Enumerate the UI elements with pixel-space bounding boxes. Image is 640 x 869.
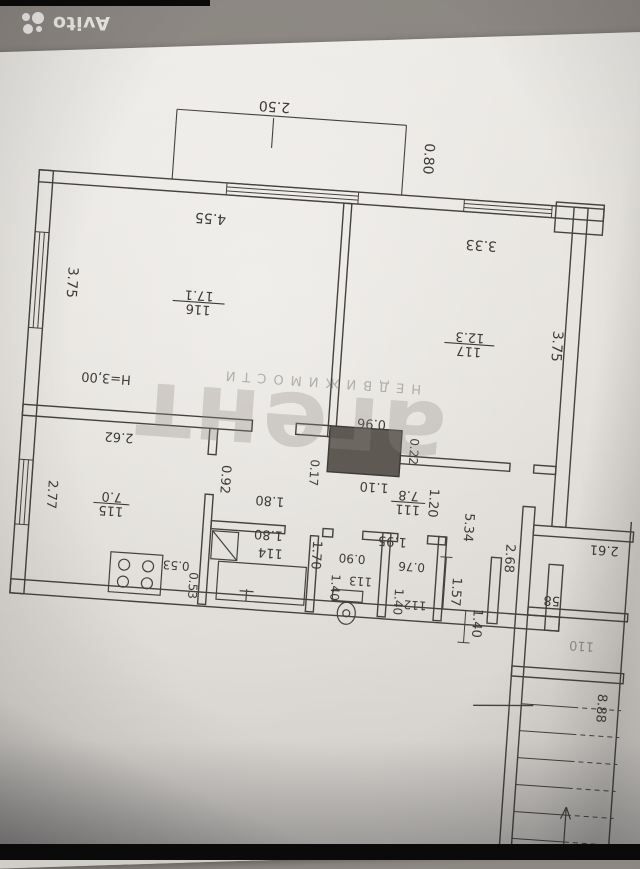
- plan-label-bath-180-a: 1.80: [255, 492, 285, 509]
- plan-label-entry-157: 1.57: [447, 577, 464, 607]
- plan-label-room115-number: 115: [98, 502, 124, 519]
- plan-label-stair-888: 8.88: [592, 693, 609, 723]
- plan-label-wc-140: 1.40: [327, 574, 343, 602]
- plan-label-landing-268: 2.68: [501, 544, 518, 574]
- plan-label-balcony-depth: 0.80: [419, 143, 437, 175]
- plan-label-kitchen-053-h: 0.53: [162, 557, 190, 573]
- plan-label-room116-width: 4.55: [194, 209, 226, 227]
- plan-label-bath-180-b: 1.80: [254, 526, 284, 543]
- plan-label-right-wall-dim: 3.75: [547, 330, 565, 362]
- plan-label-balcony-width: 2.50: [258, 97, 290, 115]
- plan-label-entry-140: 1.40: [468, 608, 485, 638]
- plan-label-closet-076: 0.76: [398, 559, 426, 575]
- avito-dots-icon: [21, 11, 45, 35]
- top-black-strip: [0, 0, 210, 6]
- plan-label-room111-number: 111: [395, 500, 421, 517]
- plan-label-bath-height: 1.70: [307, 540, 324, 570]
- stair-steps: [512, 704, 621, 846]
- window-room116-left: [28, 232, 49, 329]
- plan-label-room116-number: 116: [185, 300, 211, 317]
- plan-label-kitchen-053-v: 0.53: [185, 572, 201, 600]
- plan-label-room117-number: 117: [456, 342, 482, 359]
- plan-label-room113-number: 113: [349, 573, 373, 589]
- washbasin-icon: [211, 531, 239, 561]
- plan-label-landing-261: 2.61: [589, 541, 619, 558]
- avito-logo: Avito: [8, 7, 110, 39]
- plan-label-room115-area: 7.0: [101, 488, 123, 504]
- plan-label-landing-number: 58: [543, 592, 561, 608]
- plan-label-left-wall-dim: 3.75: [63, 266, 81, 298]
- bottom-black-strip: [0, 844, 640, 860]
- plan-label-room112-number: 112: [403, 597, 427, 613]
- plan-label-wc-090: 0.90: [338, 551, 366, 567]
- plan-label-kitchen-height: 2.77: [43, 479, 60, 509]
- window-room116-top: [226, 183, 359, 204]
- photo-of-floor-plan: { "brand": { "name": "Avito" }, "waterma…: [0, 0, 640, 860]
- window-room117-top: [464, 200, 553, 218]
- balcony-outline: [172, 109, 406, 195]
- plan-label-room117-width: 3.33: [465, 236, 497, 254]
- plan-label-hall-534: 5.34: [460, 513, 477, 543]
- plan-label-entry-195: 1.95: [377, 532, 407, 549]
- plan-label-room110-number: 110: [569, 637, 595, 654]
- fixtures: [107, 524, 366, 626]
- plan-label-room114-number: 114: [257, 544, 283, 561]
- agency-watermark-big: агент: [87, 364, 493, 488]
- avito-wordmark: Avito: [52, 12, 110, 34]
